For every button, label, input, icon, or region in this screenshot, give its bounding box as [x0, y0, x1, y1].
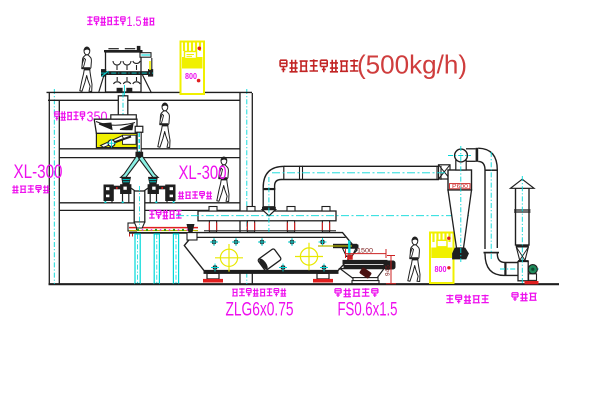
svg-text:XL-300: XL-300	[14, 162, 63, 183]
svg-text:800: 800	[435, 264, 447, 274]
svg-text:1500: 1500	[357, 248, 373, 255]
svg-text:945: 945	[385, 265, 392, 276]
svg-text:ZLG6x0.75: ZLG6x0.75	[226, 300, 294, 321]
svg-text:XL-300: XL-300	[179, 163, 227, 184]
svg-text:800: 800	[185, 71, 197, 81]
svg-text:P600: P600	[452, 184, 468, 190]
svg-text:1.5: 1.5	[127, 13, 142, 29]
svg-text:FS0.6x1.5: FS0.6x1.5	[338, 300, 398, 321]
svg-text:(500kg/h): (500kg/h)	[357, 50, 467, 80]
